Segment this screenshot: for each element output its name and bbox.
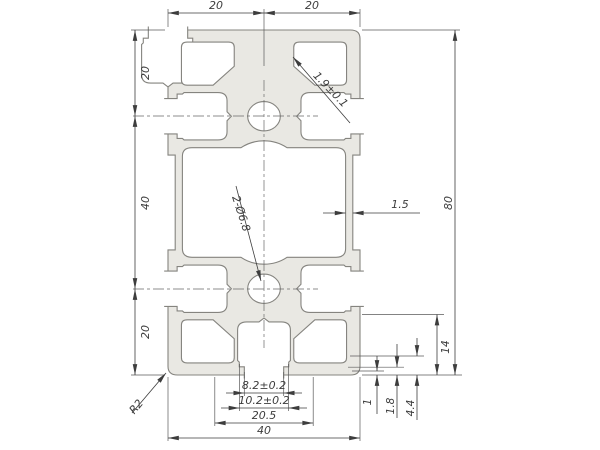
dim-top-right-label: 20 [305,0,319,12]
dim-1-8-label: 1.8 [385,397,397,414]
dim-detail-right: 1 1.8 4.4 14 [348,315,452,421]
dim-slot-inner-label: 10.2±0.2 [238,394,289,407]
drawing-canvas: 20 20 20 40 20 80 1.5 1.9±0.1 2-Ø6.8 R2 [0,0,600,450]
dim-width-40-label: 40 [257,424,271,437]
leader-corner-radius: R2 [127,373,166,417]
dim-1-label: 1 [362,399,374,406]
dim-20-5-label: 20.5 [252,409,277,422]
dim-14-label: 14 [440,340,452,353]
dim-right-80-label: 80 [442,196,455,210]
dim-slot-opening-label: 8.2±0.2 [242,379,286,392]
dim-4-4-label: 4.4 [405,400,417,417]
dim-top-left-label: 20 [209,0,223,12]
dim-wall-label: 1.5 [391,198,409,211]
dim-left-mid-label: 40 [139,196,152,210]
dim-left-top-label: 20 [139,66,152,80]
dim-right-80: 80 [362,30,462,375]
dim-left-bottom-label: 20 [139,325,152,339]
drawing-page: 20 20 20 40 20 80 1.5 1.9±0.1 2-Ø6.8 R2 [0,0,600,450]
